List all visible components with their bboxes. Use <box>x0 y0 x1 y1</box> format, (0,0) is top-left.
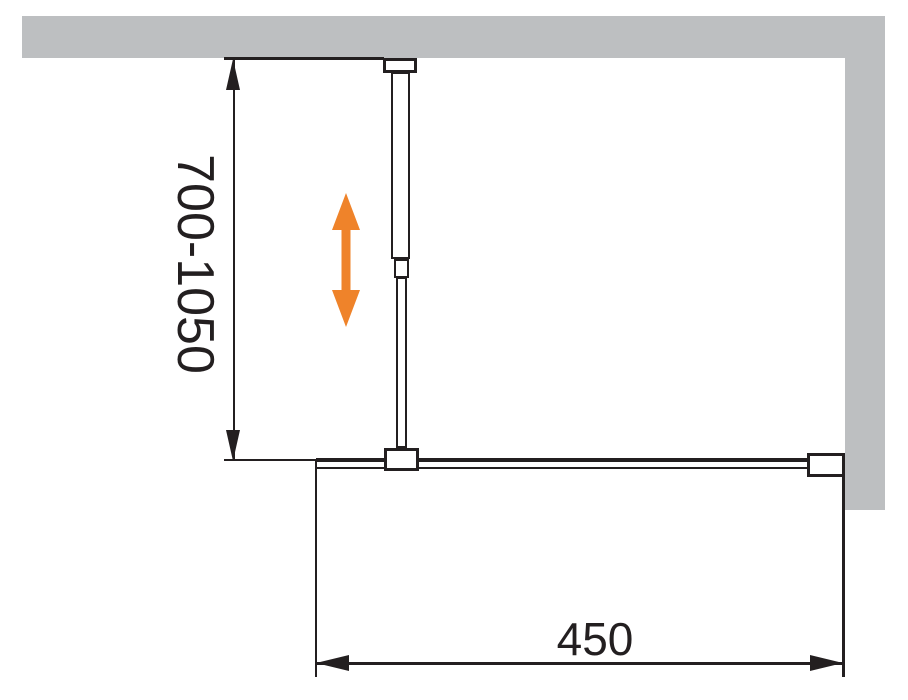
dimension-label-width: 450 <box>557 616 634 662</box>
extension-line-right <box>842 477 845 677</box>
tray-reference-line <box>224 459 317 461</box>
dimension-label-height-range: 700-1050 <box>169 154 221 374</box>
wall-face-line <box>224 57 384 60</box>
glass-clamp-block <box>384 448 419 471</box>
arrowhead-down-icon <box>226 430 240 461</box>
wall-top <box>22 16 885 58</box>
support-bar-inner-rod <box>396 277 407 448</box>
wall-right <box>845 58 885 510</box>
wall-profile-bracket <box>807 453 845 477</box>
arrowhead-left-icon <box>316 655 349 671</box>
arrowhead-up-icon <box>226 59 240 90</box>
support-bar-collar <box>394 259 409 278</box>
installation-diagram: 700-1050 450 <box>0 0 908 700</box>
adjustability-arrow-icon <box>332 193 360 327</box>
wall-mount-bracket <box>383 58 417 73</box>
vertical-dimension-line <box>233 59 236 461</box>
support-bar-upper-tube <box>391 72 410 259</box>
extension-line-left <box>315 461 318 677</box>
arrowhead-right-icon <box>810 655 843 671</box>
